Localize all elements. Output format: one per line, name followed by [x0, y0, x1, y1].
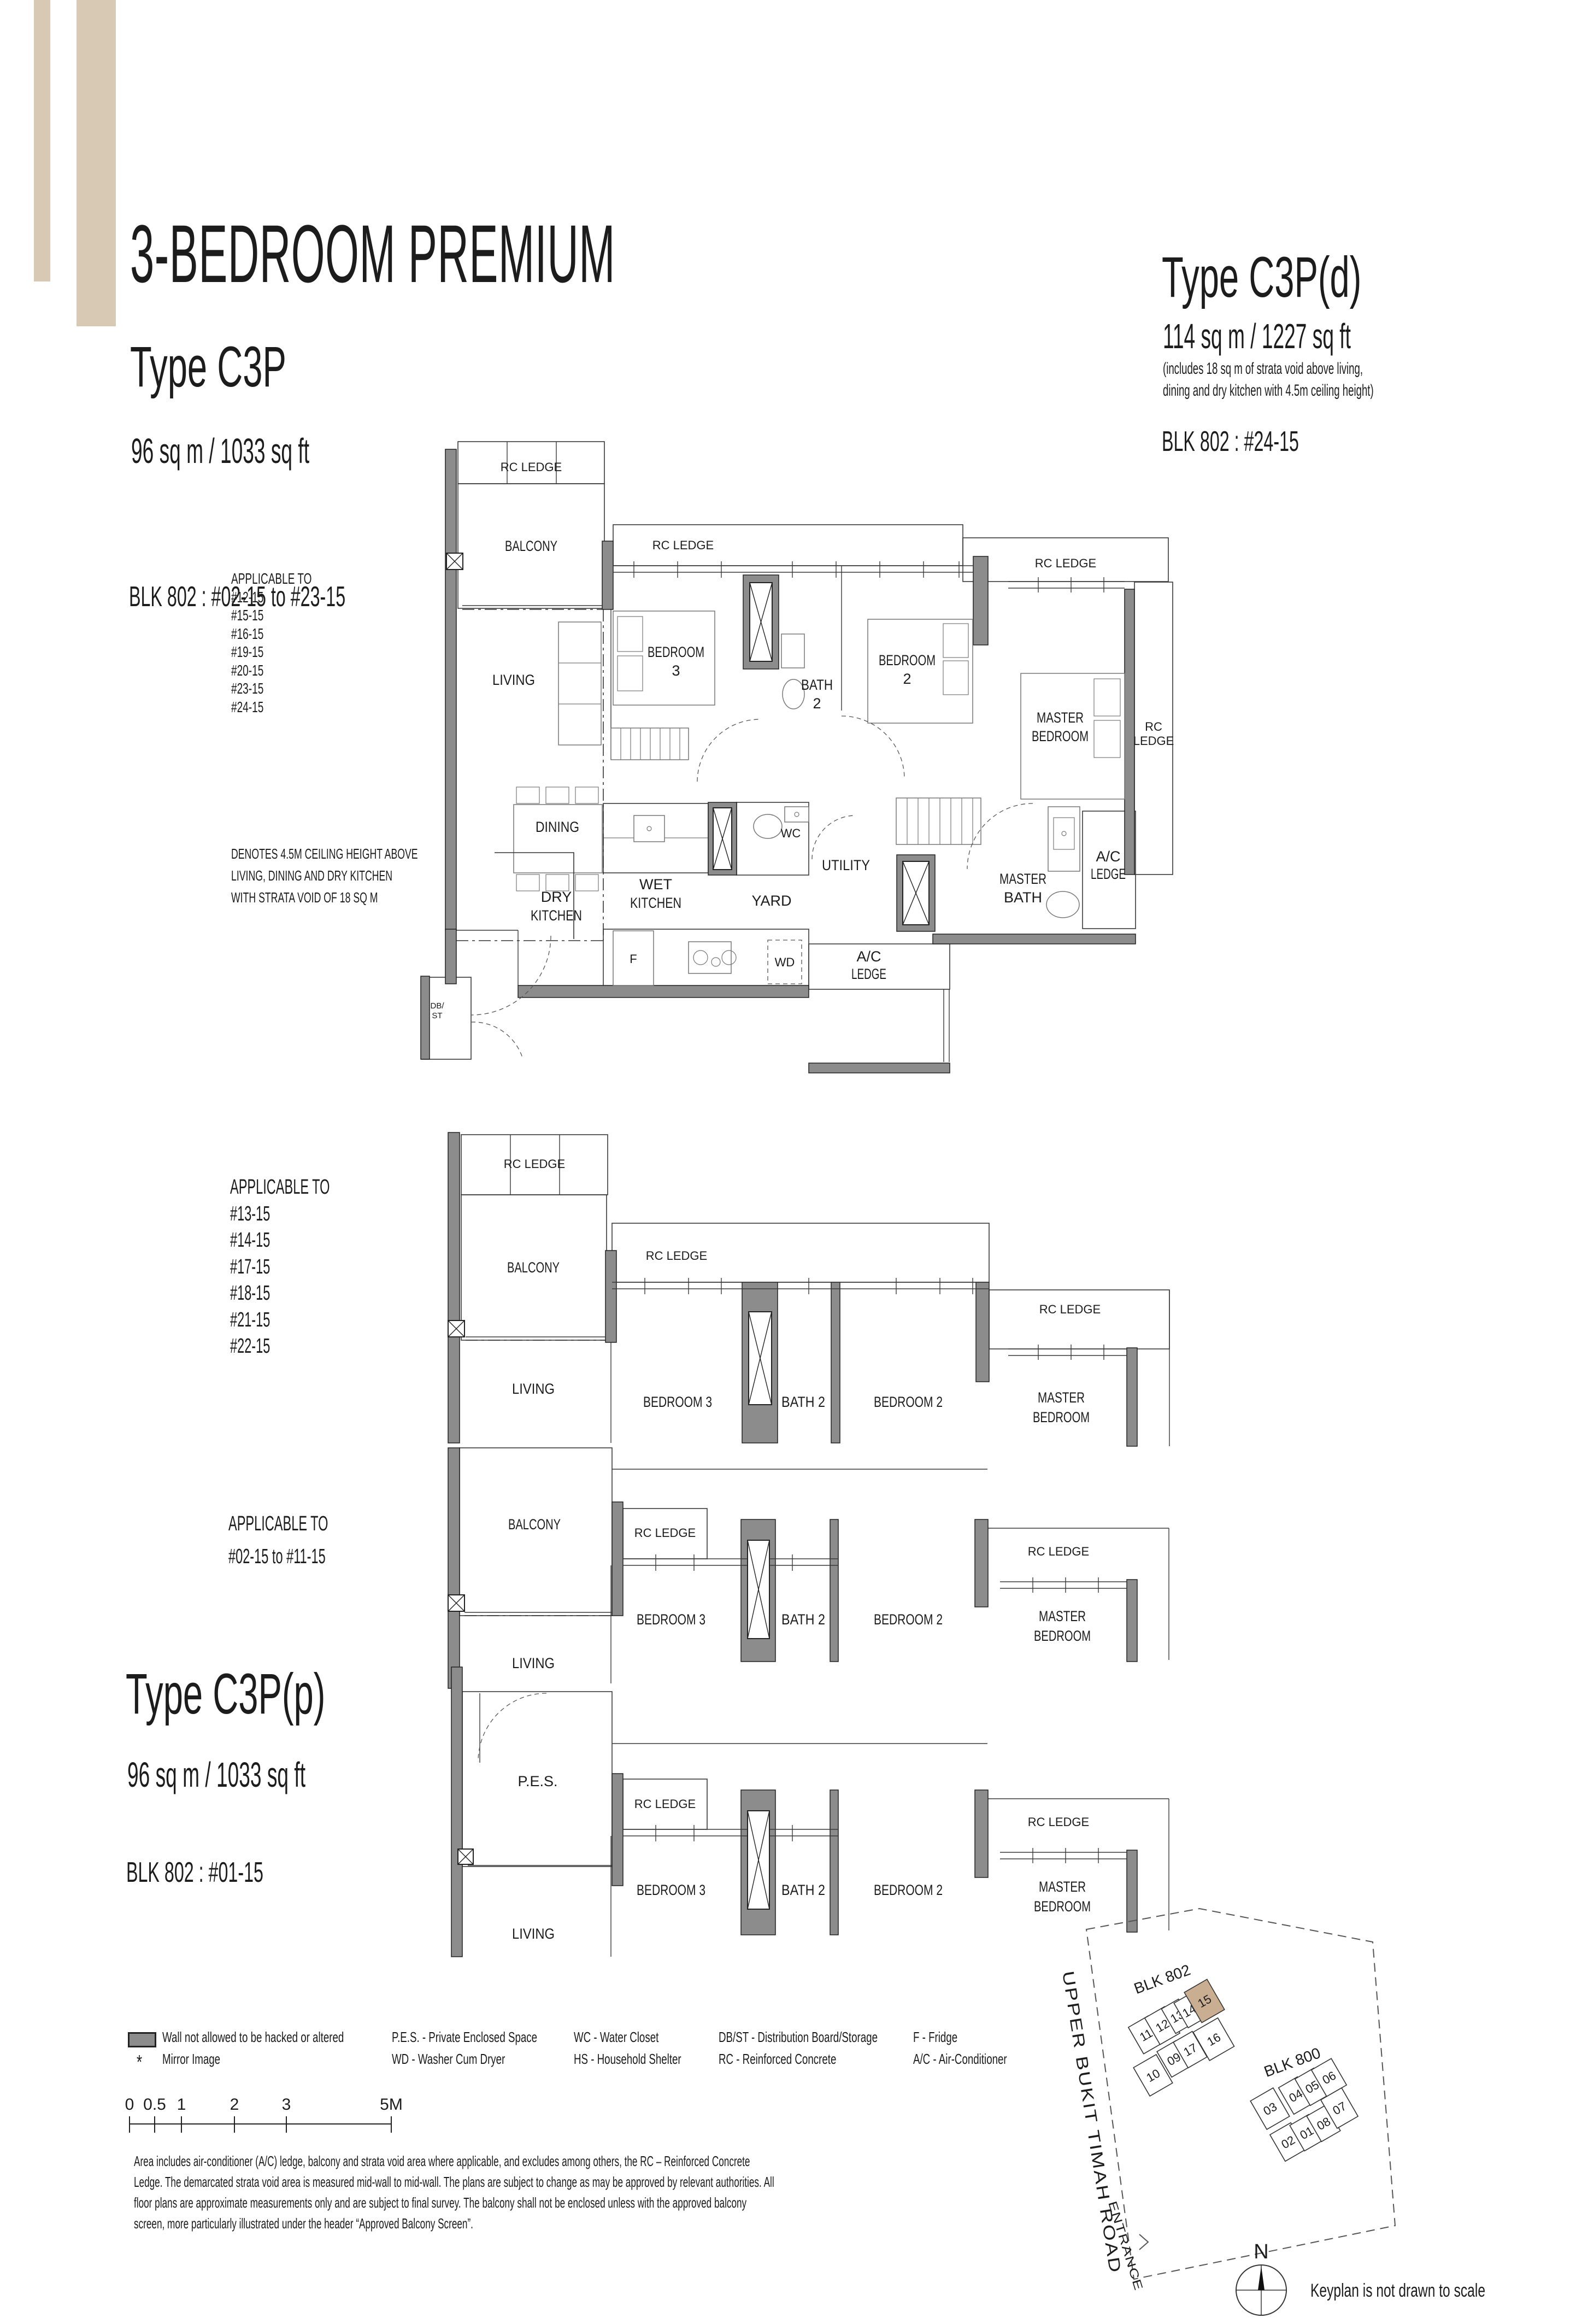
label-rc-ledge: RC LEDGE	[646, 1249, 707, 1263]
strata-note-line1: DENOTES 4.5M CEILING HEIGHT ABOVE	[231, 843, 418, 865]
applicable-2-unit: #18-15	[230, 1280, 330, 1307]
label-ac-right-ledge: LEDGE	[1091, 866, 1126, 882]
bath2-sink	[781, 634, 804, 668]
label-ac-right: A/C	[1096, 848, 1120, 865]
label-wc: WC	[781, 826, 801, 840]
applicable-1-unit: #19-15	[231, 643, 311, 661]
label-pes: P.E.S.	[517, 1773, 557, 1789]
label-bedroom3: BEDROOM 3	[643, 1394, 712, 1410]
label-ac-bottom: A/C	[856, 948, 881, 965]
label-living: LIVING	[512, 1926, 555, 1942]
label-yard: YARD	[751, 893, 791, 909]
wardrobe-bedroom3	[611, 728, 689, 760]
legend-dbst: DB/ST - Distribution Board/Storage	[719, 2029, 878, 2046]
page-title: 3-BEDROOM PREMIUM	[130, 207, 615, 301]
legend-pes: P.E.S. - Private Enclosed Space	[392, 2029, 537, 2046]
plan3-windows	[464, 1554, 1127, 1612]
legend-wall-label: Wall not allowed to be hacked or altered	[162, 2029, 344, 2046]
label-masterbath2: BATH	[1004, 889, 1042, 906]
label-rc-ledge: RC LEDGE	[652, 538, 714, 552]
legend-f: F - Fridge	[913, 2029, 957, 2046]
applicable-1-heading: APPLICABLE TO	[231, 570, 311, 588]
scale-0: 0	[125, 2096, 134, 2114]
floor-plan-variant-3: BALCONY RC LEDGE LIVING BEDROOM 3 BATH 2…	[437, 1437, 1202, 1700]
label-rc-ledge: RC LEDGE	[1028, 1815, 1089, 1829]
applicable-1-unit: #20-15	[231, 661, 311, 680]
label-master-bedroom: BEDROOM	[1034, 1628, 1091, 1644]
label-living: LIVING	[492, 672, 535, 688]
label-master-bedroom: BEDROOM	[1033, 1409, 1090, 1425]
label-bedroom2: BEDROOM 2	[874, 1611, 943, 1628]
plan2-labels: RC LEDGE BALCONY RC LEDGE LIVING BEDROOM…	[504, 1157, 1101, 1425]
applicable-2-unit: #22-15	[230, 1333, 330, 1360]
label-utility: UTILITY	[822, 857, 870, 873]
scale-05: 0.5	[143, 2096, 166, 2114]
plan4-windows	[623, 1825, 1127, 1863]
label-ac-bottom-ledge: LEDGE	[851, 966, 886, 982]
label-dry: DRY	[541, 889, 572, 905]
applicable-3-range: #02-15 to #11-15	[228, 1540, 328, 1573]
label-balcony: BALCONY	[507, 1259, 560, 1276]
sofa	[558, 622, 601, 745]
label-bedroom3-num: 3	[672, 662, 680, 679]
label-bedroom2: BEDROOM 2	[874, 1394, 943, 1410]
strata-note-line3: WITH STRATA VOID OF 18 SQ M	[231, 887, 418, 908]
label-bedroom3: BEDROOM	[648, 644, 704, 660]
legend-wd: WD - Washer Cum Dryer	[392, 2051, 505, 2068]
type-c3pp-title: Type C3P(p)	[126, 1662, 325, 1727]
label-bath2-num: 2	[813, 695, 821, 712]
plan1-windows	[462, 561, 1125, 606]
label-balcony: BALCONY	[505, 538, 557, 554]
applicable-1-unit: #12-15	[231, 588, 311, 607]
label-master: MASTER	[1039, 1608, 1086, 1624]
masterbath-toilet	[1046, 891, 1079, 918]
accent-bar-2	[77, 0, 116, 326]
scale-5m: 5M	[380, 2096, 403, 2114]
applicable-3-heading: APPLICABLE TO	[228, 1507, 328, 1540]
disclaimer-line1: Area includes air-conditioner (A/C) ledg…	[134, 2151, 774, 2172]
label-dry-kitchen: KITCHEN	[531, 907, 582, 924]
wc-sink	[785, 807, 809, 822]
label-bedroom3: BEDROOM 3	[637, 1882, 705, 1898]
label-living: LIVING	[512, 1381, 555, 1397]
dining-table	[514, 805, 602, 873]
scale-1: 1	[177, 2096, 186, 2114]
type-c3pp-area: 96 sq m / 1033 sq ft	[127, 1754, 305, 1795]
legend-mirror-label: Mirror Image	[162, 2051, 220, 2068]
label-ledge: LEDGE	[1133, 734, 1174, 748]
label-st: ST	[432, 1011, 442, 1020]
plan3-labels: BALCONY RC LEDGE LIVING BEDROOM 3 BATH 2…	[508, 1516, 1091, 1671]
floor-plan-main: RC LEDGE BALCONY RC LEDGE RC LEDGE LIVIN…	[415, 432, 1235, 1077]
applicable-1-unit: #24-15	[231, 698, 311, 717]
north-compass: N	[1236, 2240, 1286, 2315]
label-rc-ledge: RC LEDGE	[501, 460, 562, 474]
keyplan-blk802-units: 11 12 13 14 15 16 10 09 17	[1128, 1979, 1234, 2096]
applicable-list-1: APPLICABLE TO #12-15 #15-15 #16-15 #19-1…	[231, 570, 311, 716]
type-c3p-area: 96 sq m / 1033 sq ft	[131, 431, 309, 471]
label-wet-kitchen: KITCHEN	[630, 895, 681, 911]
floor-plan-variant-2: RC LEDGE BALCONY RC LEDGE LIVING BEDROOM…	[437, 1126, 1202, 1454]
wardrobe-corridor	[896, 798, 981, 844]
applicable-1-unit: #16-15	[231, 625, 311, 643]
keyplan-entrance-arrow	[1139, 2234, 1148, 2250]
keyplan: BLK 802 11 12 13 14 15 16 10 09 17 BLK 8…	[1038, 1880, 1582, 2324]
applicable-2-unit: #21-15	[230, 1307, 330, 1334]
type-c3pd-note-line1: (includes 18 sq m of strata void above l…	[1163, 358, 1374, 380]
bed-bedroom2	[868, 619, 973, 723]
label-rc: RC	[1145, 720, 1162, 733]
applicable-1-unit: #23-15	[231, 679, 311, 698]
type-c3pd-area: 114 sq m / 1227 sq ft	[1163, 316, 1351, 356]
label-db: DB/	[430, 1001, 444, 1011]
scale-3: 3	[282, 2096, 291, 2114]
legend-wall-swatch	[128, 2032, 156, 2047]
plan3-hs-boxes	[448, 1540, 769, 1639]
label-bath2: BATH 2	[781, 1394, 825, 1410]
label-wet: WET	[639, 876, 672, 893]
accent-bar-1	[34, 0, 50, 281]
type-c3pp-blk: BLK 802 : #01-15	[126, 1856, 263, 1889]
type-c3pd-note-line2: dining and dry kitchen with 4.5m ceiling…	[1163, 380, 1374, 402]
label-balcony: BALCONY	[508, 1516, 561, 1533]
label-rc-ledge: RC LEDGE	[504, 1157, 565, 1171]
strata-void-note: DENOTES 4.5M CEILING HEIGHT ABOVE LIVING…	[231, 843, 418, 908]
label-bedroom2: BEDROOM	[879, 652, 936, 668]
stove	[689, 942, 731, 973]
label-master-bedroom: BEDROOM	[1032, 728, 1089, 744]
label-bedroom3: BEDROOM 3	[637, 1611, 705, 1628]
scale-2: 2	[230, 2096, 239, 2114]
legend-mirror-symbol: *	[137, 2051, 142, 2074]
label-rc-ledge: RC LEDGE	[634, 1526, 696, 1540]
keyplan-blk802-label: BLK 802	[1132, 1961, 1193, 1997]
strata-note-line2: LIVING, DINING AND DRY KITCHEN	[231, 865, 418, 887]
legend-hs: HS - Household Shelter	[574, 2051, 681, 2068]
disclaimer-line2: Ledge. The demarcated strata void area i…	[134, 2172, 774, 2192]
keyplan-note: Keyplan is not drawn to scale	[1310, 2280, 1485, 2301]
label-rc-ledge: RC LEDGE	[634, 1797, 696, 1811]
applicable-list-2: APPLICABLE TO #13-15 #14-15 #17-15 #18-1…	[230, 1174, 330, 1360]
masterbath-sink	[1048, 807, 1080, 871]
label-rc-ledge: RC LEDGE	[1039, 1302, 1101, 1316]
legend-wc: WC - Water Closet	[574, 2029, 658, 2046]
label-fridge: F	[630, 952, 637, 966]
label-wd: WD	[775, 955, 795, 969]
label-bedroom2-num: 2	[903, 671, 911, 687]
kitchen-sink	[634, 815, 664, 842]
scale-bar: 0 0.5 1 2 3 5M	[126, 2093, 410, 2148]
type-c3p-title: Type C3P	[130, 334, 286, 400]
label-rc-ledge: RC LEDGE	[1028, 1545, 1089, 1558]
wc-toilet	[754, 814, 782, 838]
label-bath2: BATH 2	[781, 1611, 825, 1628]
label-master: MASTER	[1037, 709, 1084, 726]
label-bedroom2: BEDROOM 2	[874, 1882, 943, 1898]
applicable-2-unit: #13-15	[230, 1201, 330, 1228]
label-dining: DINING	[536, 819, 579, 835]
applicable-list-3: APPLICABLE TO #02-15 to #11-15	[228, 1507, 328, 1573]
label-rc-ledge: RC LEDGE	[1035, 556, 1096, 570]
label-bath2: BATH	[801, 677, 833, 693]
label-bath2: BATH 2	[781, 1882, 825, 1898]
disclaimer-line3: floor plans are approximate measurements…	[134, 2192, 774, 2213]
type-c3pd-note: (includes 18 sq m of strata void above l…	[1163, 358, 1374, 402]
label-master: MASTER	[1038, 1389, 1085, 1406]
disclaimer: Area includes air-conditioner (A/C) ledg…	[134, 2151, 774, 2234]
type-c3pd-title: Type C3P(d)	[1162, 245, 1361, 310]
legend-ac: A/C - Air-Conditioner	[913, 2051, 1007, 2068]
plan4-dashes	[478, 1693, 546, 1762]
label-masterbath: MASTER	[999, 871, 1046, 887]
compass-north-label: N	[1254, 2240, 1268, 2263]
applicable-1-unit: #15-15	[231, 606, 311, 625]
applicable-2-unit: #14-15	[230, 1227, 330, 1254]
keyplan-site-boundary	[1086, 1909, 1395, 2279]
disclaimer-line4: screen, more particularly illustrated un…	[134, 2213, 774, 2234]
applicable-2-unit: #17-15	[230, 1254, 330, 1281]
legend-rc: RC - Reinforced Concrete	[719, 2051, 836, 2068]
applicable-2-heading: APPLICABLE TO	[230, 1174, 330, 1201]
